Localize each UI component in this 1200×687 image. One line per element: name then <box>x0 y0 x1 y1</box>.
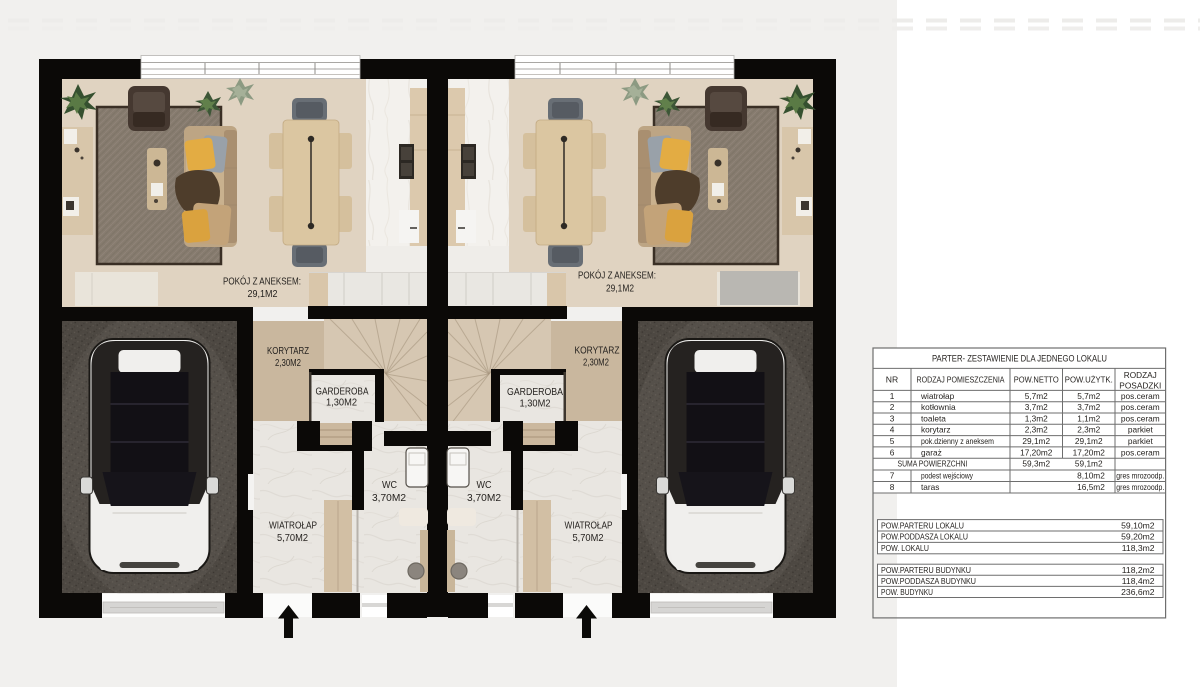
svg-text:2,30M2: 2,30M2 <box>583 358 609 369</box>
svg-text:7: 7 <box>890 470 895 480</box>
svg-text:taras: taras <box>921 482 939 492</box>
svg-text:8,10m2: 8,10m2 <box>1077 470 1105 480</box>
svg-text:pos.ceram: pos.ceram <box>1121 413 1160 423</box>
svg-text:KORYTARZ: KORYTARZ <box>575 346 620 357</box>
svg-text:GARDEROBA: GARDEROBA <box>507 387 563 398</box>
svg-text:POSADZKI: POSADZKI <box>1119 381 1161 391</box>
svg-text:8: 8 <box>890 482 895 492</box>
svg-text:118,3m2: 118,3m2 <box>1122 543 1155 553</box>
svg-text:5,7m2: 5,7m2 <box>1077 391 1100 401</box>
svg-text:parkiet: parkiet <box>1128 425 1154 435</box>
svg-text:17,20m2: 17,20m2 <box>1020 447 1053 457</box>
svg-text:POW.PARTERU BUDYNKU: POW.PARTERU BUDYNKU <box>881 565 971 575</box>
svg-text:WIATROŁAP: WIATROŁAP <box>269 521 317 532</box>
svg-text:5,7m2: 5,7m2 <box>1025 391 1048 401</box>
svg-text:POW.UŻYTK.: POW.UŻYTK. <box>1065 375 1113 385</box>
svg-text:59,1m2: 59,1m2 <box>1075 459 1103 469</box>
svg-text:59,20m2: 59,20m2 <box>1121 532 1155 542</box>
svg-text:kotłownia: kotłownia <box>921 402 956 412</box>
svg-text:POKÓJ Z ANEKSEM:: POKÓJ Z ANEKSEM: <box>578 269 656 282</box>
svg-text:gres mrozoodp.: gres mrozoodp. <box>1116 470 1164 480</box>
svg-text:KORYTARZ: KORYTARZ <box>267 346 309 357</box>
svg-text:3: 3 <box>890 413 895 423</box>
svg-text:podest wejściowy: podest wejściowy <box>921 470 974 480</box>
svg-text:118,2m2: 118,2m2 <box>1122 565 1155 575</box>
svg-text:3,70M2: 3,70M2 <box>467 493 501 504</box>
svg-text:5: 5 <box>890 436 895 446</box>
svg-text:6: 6 <box>890 447 895 457</box>
svg-text:wiatrołap: wiatrołap <box>920 391 955 401</box>
svg-text:PARTER- ZESTAWIENIE DLA JEDNEG: PARTER- ZESTAWIENIE DLA JEDNEGO LOKALU <box>932 354 1107 365</box>
svg-text:3,70M2: 3,70M2 <box>372 493 406 504</box>
svg-text:toaleta: toaleta <box>921 413 946 423</box>
svg-text:1,3m2: 1,3m2 <box>1025 413 1048 423</box>
svg-text:WC: WC <box>477 480 492 491</box>
svg-text:3,7m2: 3,7m2 <box>1077 402 1100 412</box>
svg-text:POW. BUDYNKU: POW. BUDYNKU <box>881 587 933 597</box>
svg-text:NR: NR <box>886 375 898 385</box>
svg-text:SUMA POWIERZCHNI: SUMA POWIERZCHNI <box>898 459 968 469</box>
svg-text:5,70M2: 5,70M2 <box>573 533 604 544</box>
svg-text:17,20m2: 17,20m2 <box>1073 447 1106 457</box>
svg-text:5,70M2: 5,70M2 <box>277 533 308 544</box>
svg-text:2,30M2: 2,30M2 <box>275 358 301 369</box>
svg-text:pok.dzienny z aneksem: pok.dzienny z aneksem <box>921 436 994 446</box>
svg-text:POW.PODDASZA LOKALU: POW.PODDASZA LOKALU <box>881 532 968 542</box>
svg-text:2,3m2: 2,3m2 <box>1077 425 1100 435</box>
svg-text:WC: WC <box>382 480 397 491</box>
svg-text:236,6m2: 236,6m2 <box>1121 587 1155 597</box>
svg-text:1,30M2: 1,30M2 <box>326 398 357 409</box>
svg-text:1: 1 <box>890 391 895 401</box>
svg-text:2,3m2: 2,3m2 <box>1025 425 1048 435</box>
svg-text:RODZAJ: RODZAJ <box>1124 370 1157 380</box>
svg-text:pos.ceram: pos.ceram <box>1121 391 1160 401</box>
svg-text:1,1m2: 1,1m2 <box>1077 413 1100 423</box>
svg-text:59,3m2: 59,3m2 <box>1022 459 1050 469</box>
svg-text:korytarz: korytarz <box>921 425 951 435</box>
svg-text:GARDEROBA: GARDEROBA <box>316 387 369 398</box>
svg-text:3,7m2: 3,7m2 <box>1025 402 1048 412</box>
svg-text:59,10m2: 59,10m2 <box>1121 520 1155 530</box>
svg-text:118,4m2: 118,4m2 <box>1122 576 1155 586</box>
svg-text:POW. LOKALU: POW. LOKALU <box>881 543 929 553</box>
svg-text:gres mrozoodp.: gres mrozoodp. <box>1116 482 1164 492</box>
svg-text:garaż: garaż <box>921 447 942 457</box>
svg-text:29,1m2: 29,1m2 <box>1075 436 1103 446</box>
svg-text:16,5m2: 16,5m2 <box>1077 482 1105 492</box>
svg-text:pos.ceram: pos.ceram <box>1121 402 1160 412</box>
svg-text:pos.ceram: pos.ceram <box>1121 447 1160 457</box>
svg-text:parkiet: parkiet <box>1128 436 1154 446</box>
svg-text:POW.PODDASZA BUDYNKU: POW.PODDASZA BUDYNKU <box>881 576 976 586</box>
svg-text:29,1m2: 29,1m2 <box>1022 436 1050 446</box>
svg-text:POKÓJ Z ANEKSEM:: POKÓJ Z ANEKSEM: <box>223 275 301 288</box>
svg-text:POW.NETTO: POW.NETTO <box>1014 375 1059 385</box>
svg-text:WIATROŁAP: WIATROŁAP <box>565 521 613 532</box>
svg-text:29,1M2: 29,1M2 <box>606 284 634 295</box>
svg-text:4: 4 <box>890 425 895 435</box>
svg-text:1,30M2: 1,30M2 <box>520 399 551 410</box>
svg-text:2: 2 <box>890 402 895 412</box>
svg-text:29,1M2: 29,1M2 <box>248 289 278 300</box>
svg-text:POW.PARTERU LOKALU: POW.PARTERU LOKALU <box>881 520 964 530</box>
svg-text:RODZAJ POMIESZCZENIA: RODZAJ POMIESZCZENIA <box>917 375 1005 385</box>
